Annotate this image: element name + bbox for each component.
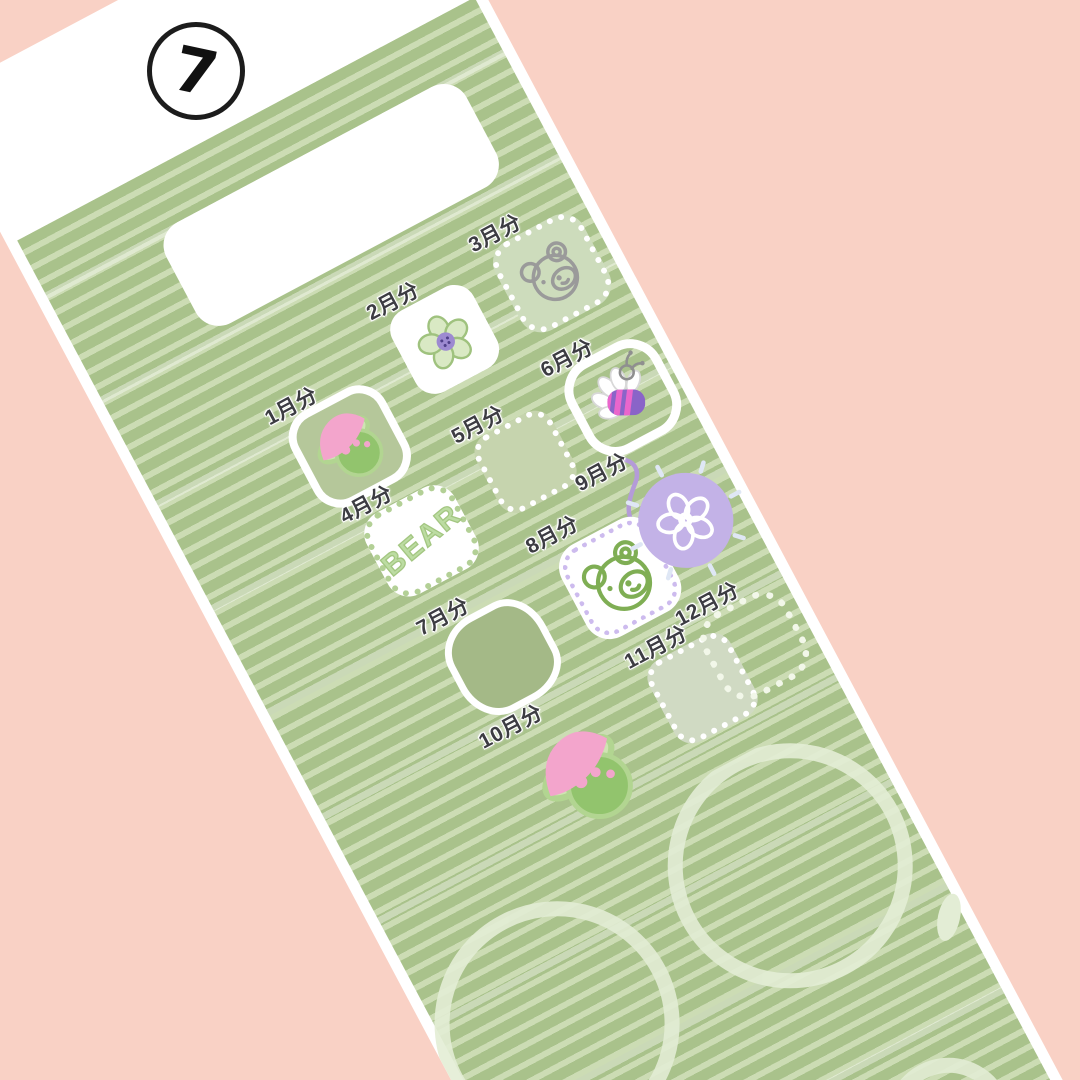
bear-text: BEAR [375, 498, 468, 584]
item-number: 7 [167, 31, 224, 111]
sticker-sheet-card: 1月分 2月分 3月分BEAR4月分5月分 6月分7月分 8月分 9月分 [0, 0, 1080, 1080]
product-photo: 1月分 2月分 3月分BEAR4月分5月分 6月分7月分 8月分 9月分 [0, 0, 1080, 1080]
item-number-badge: 7 [147, 22, 245, 120]
